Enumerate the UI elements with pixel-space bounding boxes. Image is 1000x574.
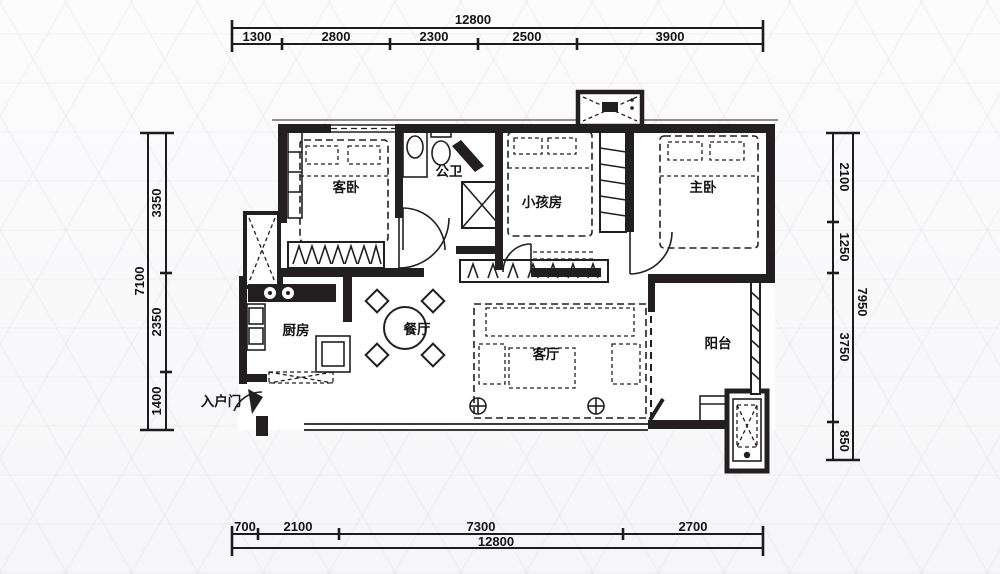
room-label-dining-room: 餐厅 bbox=[403, 321, 431, 337]
dim-right-seg-3: 850 bbox=[837, 430, 852, 452]
dim-chain-right: 7950 2100 1250 3750 850 bbox=[826, 133, 870, 460]
floorplan-page: 客卧 公卫 小孩房 主卧 厨房 餐厅 客厅 阳台 入户门 12800 1300 … bbox=[0, 0, 1000, 574]
dim-bottom-seg-0: 700 bbox=[234, 519, 256, 534]
balcony-right-window bbox=[751, 282, 760, 394]
dim-chain-left: 7100 3350 2350 1400 bbox=[132, 133, 174, 430]
dim-left-seg-1: 2350 bbox=[149, 308, 164, 337]
entrance-label: 入户门 bbox=[201, 393, 242, 409]
dim-chain-bottom: 700 2100 7300 2700 12800 bbox=[232, 519, 763, 556]
pipe-duct bbox=[245, 213, 279, 287]
room-label-kids-room: 小孩房 bbox=[522, 194, 563, 210]
room-label-balcony: 阳台 bbox=[705, 335, 732, 351]
dim-top-seg-1: 2800 bbox=[322, 29, 351, 44]
window-guest-top bbox=[331, 124, 395, 133]
floor-lamp-icon bbox=[588, 398, 604, 414]
dim-bottom-seg-2: 7300 bbox=[467, 519, 496, 534]
dim-right-seg-0: 2100 bbox=[837, 163, 852, 192]
dim-top-seg-0: 1300 bbox=[243, 29, 272, 44]
dim-bottom-seg-1: 2100 bbox=[284, 519, 313, 534]
dim-top-seg-3: 2500 bbox=[513, 29, 542, 44]
laundry-nook bbox=[727, 391, 767, 471]
room-label-kitchen: 厨房 bbox=[283, 322, 310, 338]
dim-top-total: 12800 bbox=[455, 12, 491, 27]
dim-top-seg-2: 2300 bbox=[420, 29, 449, 44]
dim-top-seg-4: 3900 bbox=[656, 29, 685, 44]
dim-left-total: 7100 bbox=[132, 267, 147, 296]
dim-left-seg-2: 1400 bbox=[149, 387, 164, 416]
dim-bottom-seg-3: 2700 bbox=[679, 519, 708, 534]
room-label-guest-bedroom: 客卧 bbox=[332, 179, 360, 195]
dim-bottom-total: 12800 bbox=[478, 534, 514, 549]
room-label-living-room: 客厅 bbox=[532, 346, 561, 362]
dim-right-seg-2: 3750 bbox=[837, 333, 852, 362]
dim-chain-top: 12800 1300 2800 2300 2500 3900 bbox=[232, 12, 763, 52]
room-label-master-bedroom: 主卧 bbox=[690, 179, 718, 195]
floorplan-canvas: 客卧 公卫 小孩房 主卧 厨房 餐厅 客厅 阳台 入户门 12800 1300 … bbox=[0, 0, 1000, 574]
ac-platform bbox=[578, 92, 642, 126]
dim-right-total: 7950 bbox=[855, 288, 870, 317]
dim-right-seg-1: 1250 bbox=[837, 233, 852, 262]
floor-lamp-icon bbox=[470, 398, 486, 414]
dim-left-seg-0: 3350 bbox=[149, 189, 164, 218]
room-label-bathroom: 公卫 bbox=[436, 164, 463, 179]
